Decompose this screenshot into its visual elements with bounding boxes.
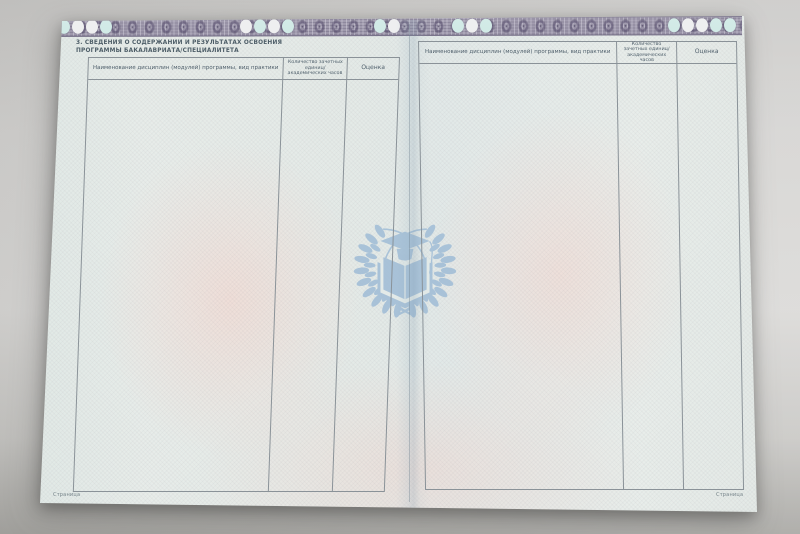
band-oval xyxy=(100,20,112,34)
band-oval xyxy=(452,19,464,33)
band-oval xyxy=(480,19,492,33)
band-oval xyxy=(72,20,84,34)
band-oval-cluster xyxy=(452,19,494,34)
column-header-discipline-name: Наименование дисциплин (модулей) програм… xyxy=(419,42,616,63)
band-oval xyxy=(240,19,252,33)
column-header-grade: Оценка xyxy=(676,42,736,63)
band-oval xyxy=(268,19,280,33)
right-table-header-row: Наименование дисциплин (модулей) програм… xyxy=(419,42,736,64)
band-oval-cluster xyxy=(58,20,114,35)
left-page-table: Наименование дисциплин (модулей) програм… xyxy=(73,57,400,492)
band-oval xyxy=(724,18,736,32)
table-body-cell xyxy=(676,64,743,489)
band-oval-cluster xyxy=(668,18,738,33)
document-photo: 3. СВЕДЕНИЯ О СОДЕРЖАНИИ И РЕЗУЛЬТАТАХ О… xyxy=(0,0,800,534)
page-footer-label-left: Страница xyxy=(53,492,80,498)
band-oval xyxy=(466,19,478,33)
column-header-grade: Оценка xyxy=(346,58,399,79)
section-title: 3. СВЕДЕНИЯ О СОДЕРЖАНИИ И РЕЗУЛЬТАТАХ О… xyxy=(76,40,296,55)
band-oval xyxy=(282,19,294,33)
band-oval xyxy=(254,19,266,33)
column-header-credit-hours: Количество зачетных единиц/ академически… xyxy=(616,42,676,63)
band-oval xyxy=(710,18,722,32)
table-body-cell xyxy=(616,64,683,489)
band-oval xyxy=(58,20,70,34)
table-body-cell xyxy=(419,64,623,489)
band-oval xyxy=(374,19,386,33)
document-sheet: 3. СВЕДЕНИЯ О СОДЕРЖАНИИ И РЕЗУЛЬТАТАХ О… xyxy=(0,0,800,534)
security-band xyxy=(56,16,742,37)
band-oval xyxy=(682,18,694,32)
left-table-body-row xyxy=(74,80,398,491)
section-title-line1: 3. СВЕДЕНИЯ О СОДЕРЖАНИИ И РЕЗУЛЬТАТАХ О… xyxy=(76,40,296,48)
right-table-body-row xyxy=(419,64,743,489)
band-oval xyxy=(696,18,708,32)
sheet-shadow: 3. СВЕДЕНИЯ О СОДЕРЖАНИИ И РЕЗУЛЬТАТАХ О… xyxy=(0,0,800,534)
page-footer-label-right: Страница xyxy=(716,492,743,498)
band-oval xyxy=(388,19,400,33)
page-fold-line xyxy=(409,24,410,502)
section-title-line2: ПРОГРАММЫ БАКАЛАВРИАТА/СПЕЦИАЛИТЕТА xyxy=(76,48,296,56)
column-header-discipline-name: Наименование дисциплин (модулей) програм… xyxy=(88,58,283,79)
right-page-table: Наименование дисциплин (модулей) програм… xyxy=(418,41,744,490)
band-oval-cluster xyxy=(374,19,402,34)
band-oval xyxy=(86,20,98,34)
left-table-header-row: Наименование дисциплин (модулей) програм… xyxy=(88,58,399,80)
table-body-cell xyxy=(74,80,282,491)
band-oval-cluster xyxy=(240,19,296,34)
band-oval xyxy=(668,18,680,32)
column-header-credit-hours: Количество зачетных единиц/ академически… xyxy=(282,58,347,79)
